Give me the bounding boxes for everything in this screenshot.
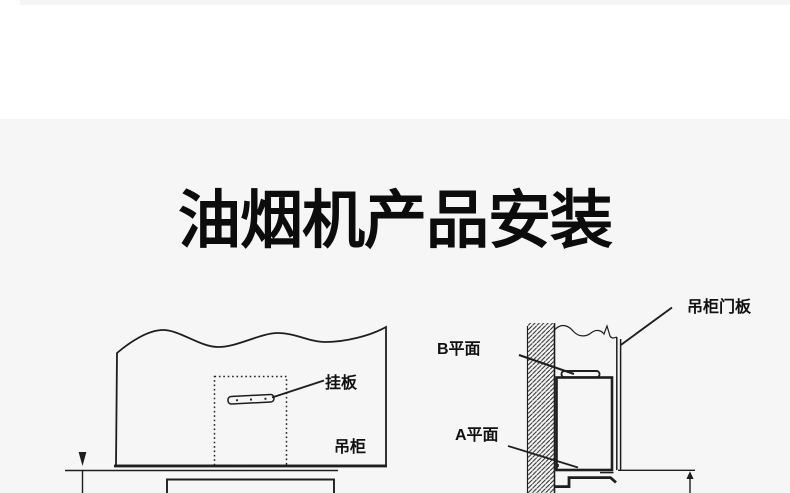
hood-body bbox=[557, 378, 613, 471]
door-panel-pointer-line bbox=[621, 308, 672, 346]
hanging-plate-pointer-line bbox=[272, 381, 324, 398]
mounting-area-dashed-box bbox=[215, 377, 287, 466]
page: 油烟机产品安装 bbox=[0, 0, 790, 493]
hanging-plate-hole bbox=[236, 399, 238, 401]
cabinet-label: 吊柜 bbox=[334, 439, 366, 457]
plane-a-dot bbox=[556, 464, 559, 467]
hanging-plate-hole bbox=[264, 398, 266, 400]
diagram-canvas bbox=[0, 0, 790, 493]
wall-hatch bbox=[528, 323, 555, 493]
hanging-plate-hole bbox=[250, 399, 252, 401]
plane-a-label: A平面 bbox=[455, 427, 499, 445]
down-dimension-arrow bbox=[79, 452, 87, 466]
hanging-plate bbox=[228, 394, 274, 404]
up-dimension-arrow bbox=[686, 471, 693, 479]
break-squiggle bbox=[555, 326, 617, 338]
plane-b-label: B平面 bbox=[437, 341, 481, 359]
cabinet-door-panel-label: 吊柜门板 bbox=[687, 299, 751, 317]
hood-bottom-lip bbox=[555, 478, 617, 487]
base-cabinet-outline bbox=[167, 480, 334, 493]
hanging-plate-label: 挂板 bbox=[325, 375, 357, 393]
